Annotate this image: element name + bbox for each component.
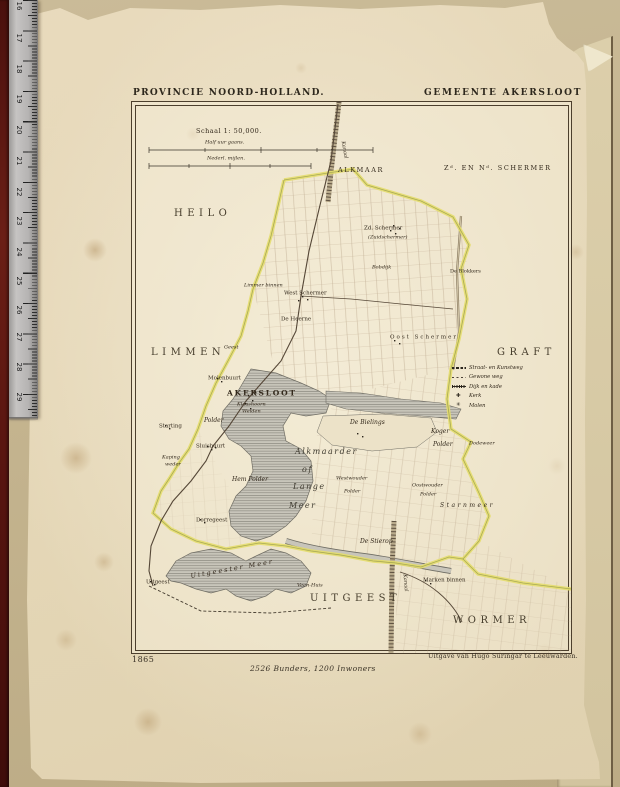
ruler-number: 16 bbox=[15, 0, 23, 13]
map-label: De Stierop bbox=[360, 539, 393, 545]
map-label: Dorregeest bbox=[196, 518, 227, 524]
map-label: De Heerne bbox=[281, 317, 311, 323]
map-label: Uitgeester Meer bbox=[190, 558, 274, 579]
map-label: Meer bbox=[289, 502, 316, 510]
map-label: Nederl. mijlen. bbox=[207, 157, 245, 162]
legend-label: Straat- en Kunstweg bbox=[469, 365, 523, 371]
ruler-number: 20 bbox=[15, 123, 23, 137]
header-gemeente: GEMEENTE AKERSLOOT bbox=[424, 88, 582, 98]
legend-symbol-road-thin bbox=[452, 375, 466, 380]
map-label: Klaashoorn bbox=[237, 403, 266, 408]
map-label: GRAFT bbox=[497, 348, 556, 358]
ruler-number: 21 bbox=[15, 154, 23, 168]
legend-item: Dijk en kade bbox=[452, 384, 564, 390]
map-label: Koger bbox=[431, 429, 449, 435]
map-label: Oostwouder bbox=[412, 484, 443, 489]
legend-item: Kerk bbox=[452, 393, 564, 399]
mill-icon bbox=[452, 403, 466, 408]
map-label: HEILO bbox=[174, 209, 231, 219]
map-label: WORMER bbox=[453, 616, 531, 626]
map-label: Molenbuurt bbox=[208, 376, 241, 382]
ruler-number: 18 bbox=[15, 62, 23, 76]
ruler-number: 26 bbox=[15, 303, 23, 317]
map-label: LIMMEN bbox=[151, 348, 225, 358]
ruler-number: 23 bbox=[15, 214, 23, 228]
map-label: Bobdijk bbox=[372, 266, 391, 271]
photo-background: PROVINCIE NOORD-HOLLAND. GEMEENTE AKERSL… bbox=[0, 0, 620, 787]
map-label: Veen-Huis bbox=[297, 584, 323, 589]
map-label: Kanaal bbox=[401, 574, 408, 592]
legend-label: Dijk en kade bbox=[469, 384, 502, 390]
map-label: Zᵈ. EN Nᵈ. SCHERMER bbox=[444, 165, 552, 172]
map-label: Kanaal bbox=[340, 141, 348, 159]
map-legend: Straat- en KunstwegGewone wegDijk en kad… bbox=[452, 365, 564, 412]
map-label: Polder bbox=[344, 490, 360, 495]
map-label: Lange bbox=[293, 483, 326, 491]
map-label: Polder bbox=[433, 442, 453, 448]
map-label: Polder bbox=[204, 418, 224, 424]
church-icon bbox=[452, 394, 466, 399]
legend-symbol-dike bbox=[452, 384, 466, 389]
map-label: De Blokkers bbox=[450, 270, 481, 275]
map-label: Half uur gaans. bbox=[205, 141, 244, 146]
ruler-number: 17 bbox=[15, 31, 23, 45]
map-label: AKERSLOOT bbox=[227, 389, 297, 397]
legend-item: Straat- en Kunstweg bbox=[452, 365, 564, 371]
measuring-tape-ruler: 1617181920212223242526272829 bbox=[7, 0, 38, 418]
map-label: Oost Schermer bbox=[390, 335, 458, 341]
map-label: Alkmaarder bbox=[295, 448, 358, 456]
ruler-number: 19 bbox=[15, 92, 23, 106]
map-label: Weiden bbox=[242, 410, 261, 415]
map-label: Westwouder bbox=[336, 477, 367, 482]
legend-label: Kerk bbox=[469, 393, 481, 399]
map-label: of bbox=[302, 466, 313, 474]
legend-symbol-road-bold bbox=[452, 366, 466, 371]
legend-item: Molen bbox=[452, 403, 564, 409]
map-label: Polder bbox=[420, 493, 436, 498]
ruler-number: 29 bbox=[15, 390, 23, 404]
map-frame: Schaal 1: 50,000.Half uur gaans.Nederl. … bbox=[131, 101, 572, 654]
map-label: Marken binnen bbox=[423, 578, 466, 584]
header-province: PROVINCIE NOORD-HOLLAND. bbox=[133, 88, 325, 98]
map-sheet: PROVINCIE NOORD-HOLLAND. GEMEENTE AKERSL… bbox=[0, 0, 620, 787]
map-label: (Zuidschermer) bbox=[368, 236, 407, 241]
map-label: De Bielings bbox=[350, 420, 385, 426]
map-label: Sluisbuurt bbox=[196, 444, 225, 450]
ruler-number: 22 bbox=[15, 185, 23, 199]
map-label: Hem Polder bbox=[232, 477, 268, 483]
map-label: UITGEEST bbox=[310, 594, 401, 604]
ruler-number: 25 bbox=[15, 274, 23, 288]
map-label: Kaping bbox=[162, 456, 180, 461]
legend-item: Gewone weg bbox=[452, 374, 564, 380]
map-label: Geest bbox=[224, 346, 239, 351]
map-label: weder bbox=[165, 463, 181, 468]
ruler-number: 28 bbox=[15, 360, 23, 374]
ruler-number: 27 bbox=[15, 330, 23, 344]
map-label: ALKMAAR bbox=[338, 167, 384, 174]
map-label: Starnmeer bbox=[440, 503, 495, 509]
map-label: Dodeweer bbox=[469, 442, 495, 447]
map-label: West Schermer bbox=[284, 291, 327, 297]
map-label: Limmer binnen bbox=[244, 284, 283, 289]
map-label: Schaal 1: 50,000. bbox=[196, 128, 262, 135]
map-label: Zd. Schermer bbox=[364, 226, 402, 232]
map-statistics: 2526 Bunders, 1200 Inwoners bbox=[250, 664, 376, 673]
map-year: 1865 bbox=[132, 655, 154, 664]
ruler-number: 24 bbox=[15, 245, 23, 259]
map-label: Uitgeest bbox=[146, 580, 170, 586]
publisher-imprint: Uitgave van Hugo Suringar te Leeuwarden. bbox=[428, 652, 578, 660]
legend-label: Gewone weg bbox=[469, 374, 503, 380]
legend-label: Molen bbox=[469, 403, 486, 409]
ruler-mm-ticks bbox=[32, 0, 37, 418]
map-label: Starting bbox=[159, 424, 182, 430]
book-spine bbox=[0, 0, 9, 787]
